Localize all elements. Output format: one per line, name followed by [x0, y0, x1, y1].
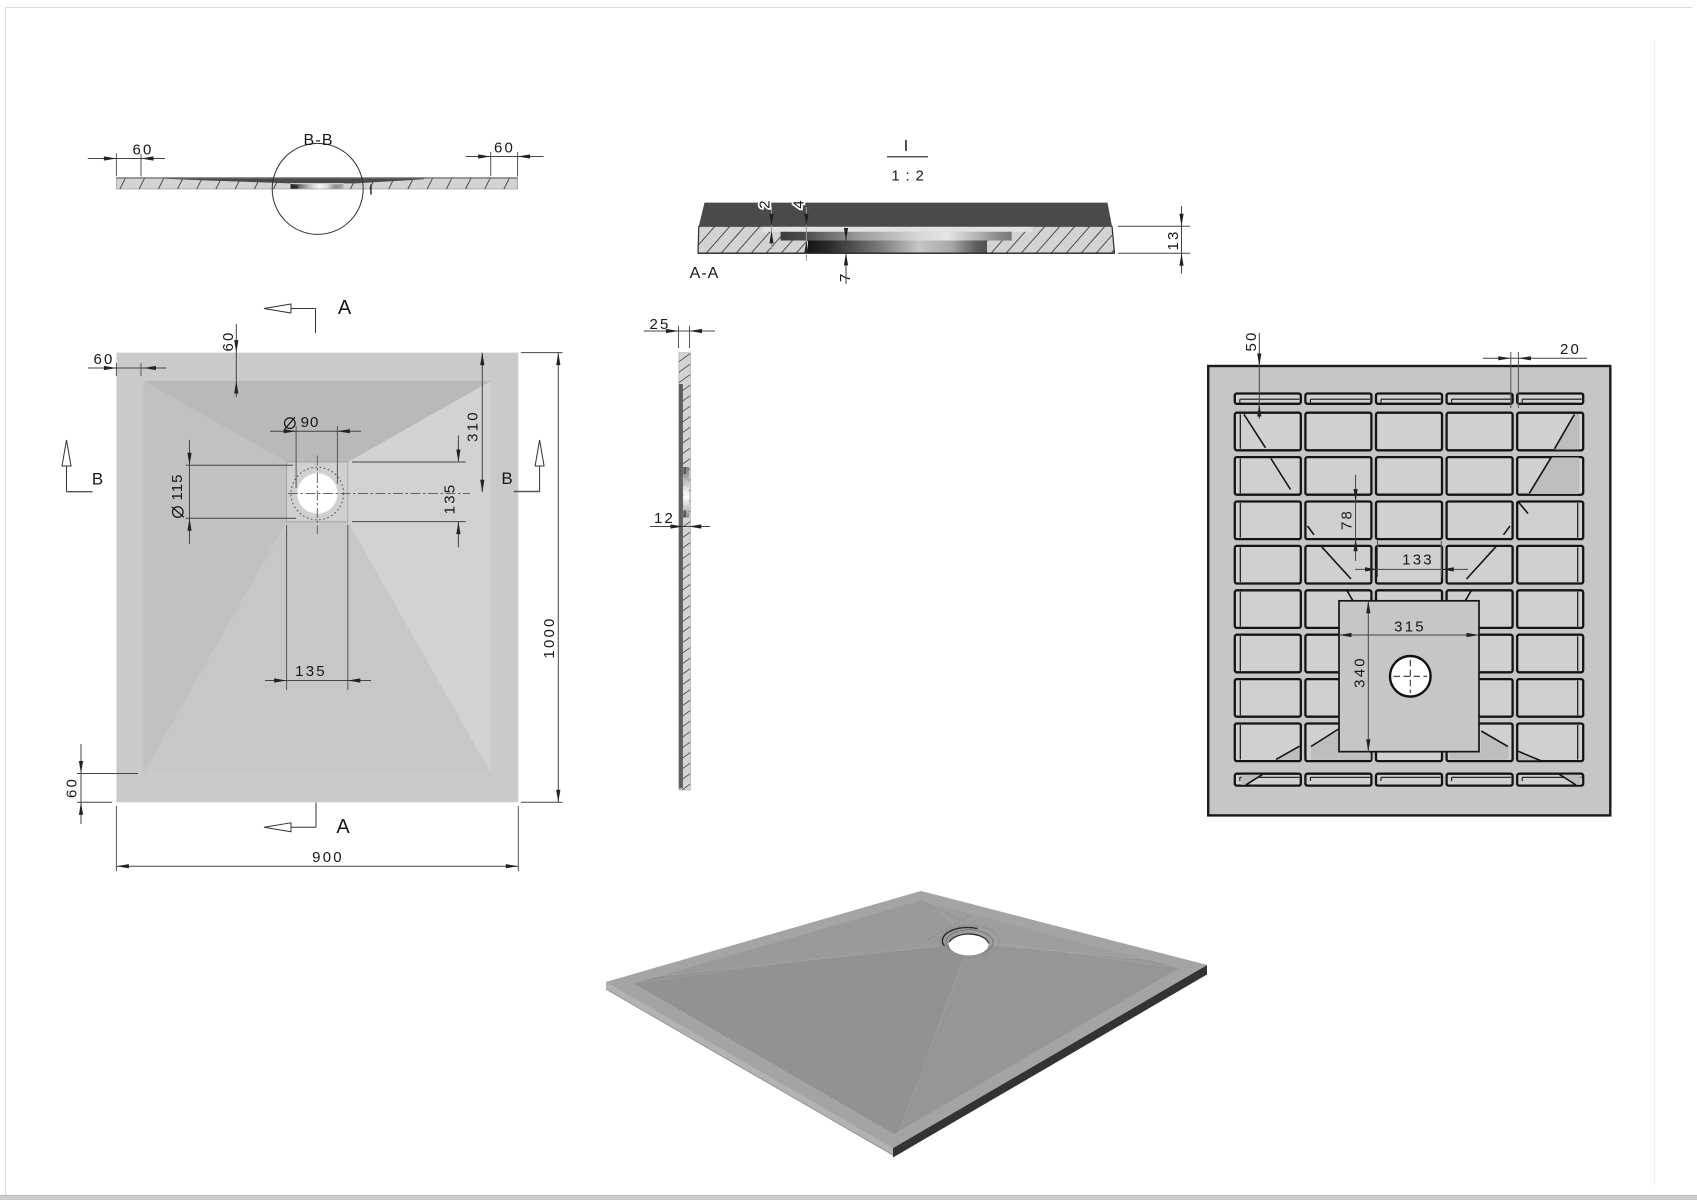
- svg-text:1000: 1000: [541, 616, 558, 658]
- svg-text:4: 4: [791, 198, 808, 209]
- svg-text:2: 2: [757, 198, 774, 209]
- svg-text:50: 50: [1243, 330, 1260, 351]
- svg-text:A: A: [336, 816, 350, 838]
- svg-text:133: 133: [1402, 552, 1434, 569]
- svg-text:B-B: B-B: [303, 132, 333, 149]
- svg-text:310: 310: [465, 410, 482, 442]
- svg-text:60: 60: [93, 351, 114, 368]
- svg-text:340: 340: [1352, 656, 1369, 688]
- svg-text:12: 12: [654, 510, 675, 527]
- svg-text:20: 20: [1560, 341, 1581, 358]
- svg-text:135: 135: [442, 483, 459, 515]
- svg-text:60: 60: [494, 139, 515, 156]
- svg-text:13: 13: [1165, 229, 1182, 250]
- svg-text:A: A: [338, 297, 352, 319]
- svg-text:B: B: [92, 470, 103, 489]
- svg-text:60: 60: [132, 141, 153, 158]
- svg-text:900: 900: [312, 849, 344, 866]
- svg-text:135: 135: [295, 663, 327, 680]
- svg-text:315: 315: [1394, 619, 1426, 636]
- svg-text:115: 115: [169, 474, 186, 501]
- svg-text:60: 60: [220, 330, 237, 351]
- svg-text:A-A: A-A: [690, 265, 720, 282]
- svg-text:90: 90: [301, 414, 320, 431]
- svg-text:I: I: [369, 182, 373, 199]
- svg-text:1 : 2: 1 : 2: [891, 168, 924, 185]
- svg-text:25: 25: [649, 316, 670, 333]
- svg-text:I: I: [904, 138, 908, 155]
- svg-text:78: 78: [1339, 509, 1356, 530]
- svg-text:60: 60: [64, 777, 81, 798]
- svg-text:B: B: [501, 469, 512, 488]
